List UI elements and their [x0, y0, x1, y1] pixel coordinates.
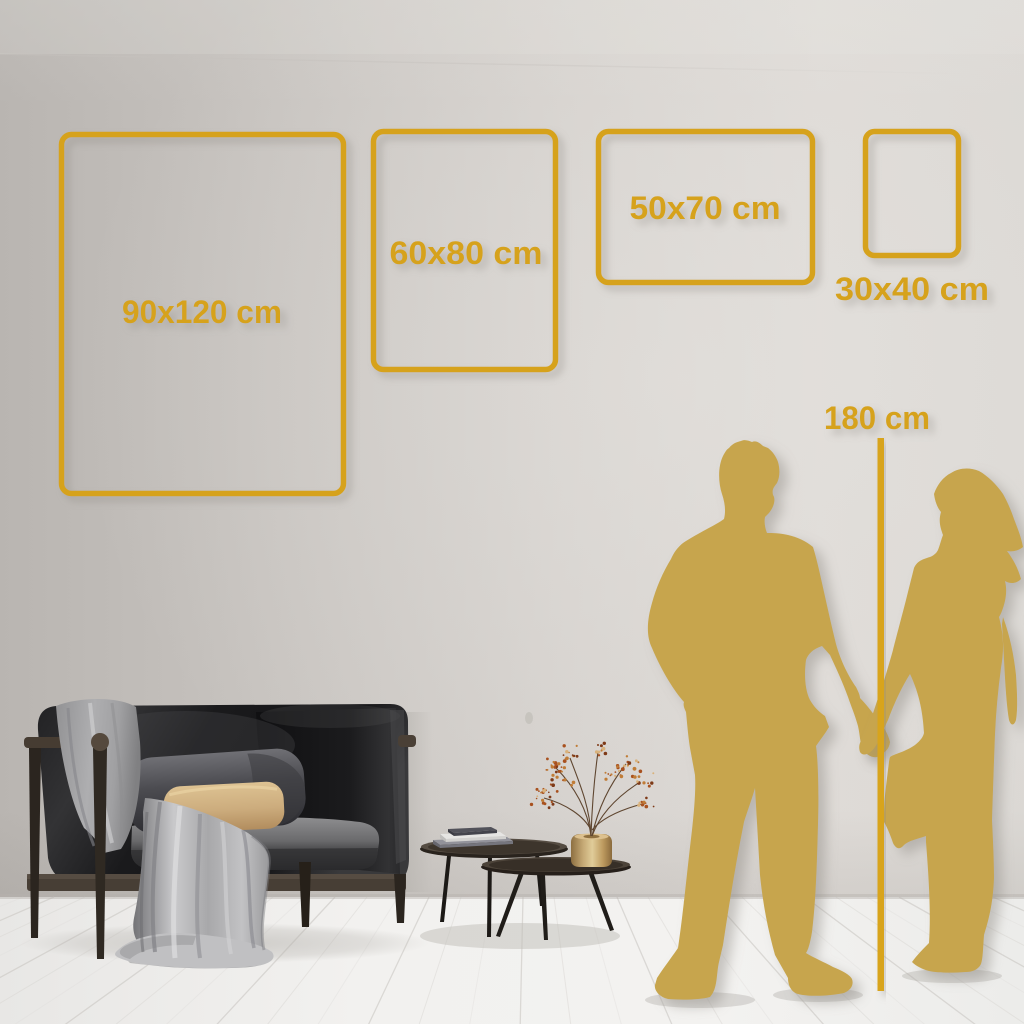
- svg-text:30x40 cm: 30x40 cm: [835, 271, 989, 307]
- svg-text:90x120 cm: 90x120 cm: [122, 294, 282, 330]
- svg-text:50x70 cm: 50x70 cm: [630, 190, 781, 226]
- svg-text:60x80 cm: 60x80 cm: [390, 235, 543, 271]
- svg-text:180 cm: 180 cm: [824, 400, 930, 436]
